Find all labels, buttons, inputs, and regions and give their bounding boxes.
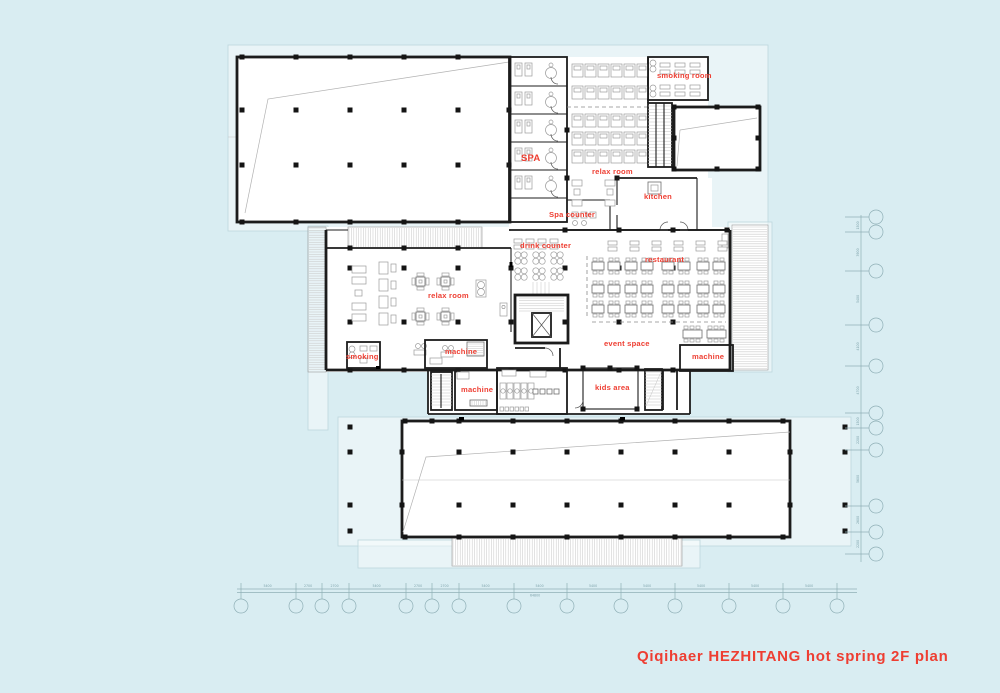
svg-text:4100: 4100: [856, 342, 860, 350]
svg-text:5400: 5400: [856, 295, 860, 303]
label-kitchen: kitchen: [644, 192, 672, 201]
svg-text:4700: 4700: [856, 386, 860, 394]
svg-text:2200: 2200: [856, 436, 860, 444]
label-smoking-room-top: smoking room: [657, 71, 712, 80]
label-spa-counter: Spa counter: [549, 210, 595, 219]
svg-text:5400: 5400: [805, 584, 813, 588]
label-relax-room-mid: relax room: [428, 291, 469, 300]
svg-text:5400: 5400: [751, 584, 759, 588]
plan-linework: 5400270027005400270027005400540054005400…: [228, 45, 883, 613]
floor-plan-canvas: 5400270027005400270027005400540054005400…: [0, 0, 1000, 693]
svg-text:5400: 5400: [643, 584, 651, 588]
label-machine-lower: machine: [461, 385, 493, 394]
svg-text:5400: 5400: [373, 584, 381, 588]
svg-text:5400: 5400: [482, 584, 490, 588]
drawing-title: Qiqihaer HEZHITANG hot spring 2F plan: [637, 648, 948, 665]
svg-text:5400: 5400: [536, 584, 544, 588]
svg-text:5400: 5400: [589, 584, 597, 588]
label-machine-right: machine: [692, 352, 724, 361]
label-machine-upper: machine: [445, 347, 477, 356]
svg-text:5600: 5600: [856, 475, 860, 483]
svg-text:2700: 2700: [304, 584, 312, 588]
label-spa: SPA: [521, 153, 540, 164]
svg-text:2700: 2700: [441, 584, 449, 588]
floor-plan-drawing: 5400270027005400270027005400540054005400…: [0, 0, 1000, 693]
svg-text:64800: 64800: [530, 594, 540, 598]
svg-text:2700: 2700: [331, 584, 339, 588]
svg-text:1500: 1500: [856, 221, 860, 229]
label-relax-room-top: relax room: [592, 167, 633, 176]
svg-text:2200: 2200: [856, 540, 860, 548]
label-event-space: event space: [604, 339, 650, 348]
label-restaurant: restaurant: [645, 255, 684, 264]
svg-text:5400: 5400: [264, 584, 272, 588]
svg-text:2600: 2600: [856, 516, 860, 524]
svg-text:1500: 1500: [856, 417, 860, 425]
svg-text:3900: 3900: [856, 248, 860, 256]
svg-text:2700: 2700: [414, 584, 422, 588]
label-drink-counter: drink counter: [520, 241, 571, 250]
label-kids-area: kids area: [595, 383, 630, 392]
label-smoking-mid: smoking: [346, 352, 379, 361]
svg-text:5400: 5400: [697, 584, 705, 588]
